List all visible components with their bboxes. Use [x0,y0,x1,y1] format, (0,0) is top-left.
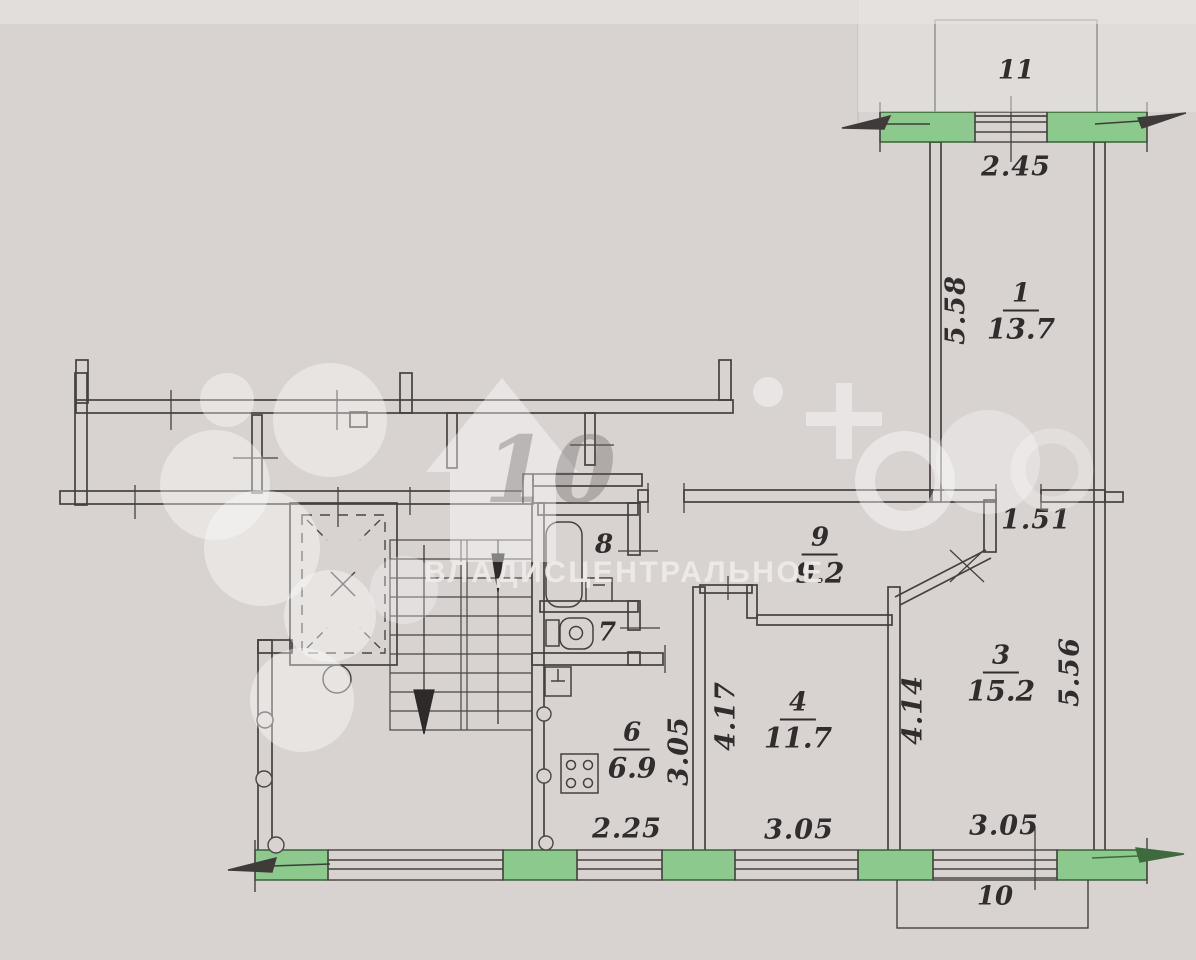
dim-room3-window: 3.05 [969,811,1039,842]
balcony-11-label: 11 [989,56,1043,87]
kitchen-sink [545,667,571,696]
dim-room1-depth: 5.58 [941,275,972,345]
dim-kitchen-depth: 3.05 [664,716,695,786]
dim-room4-depth: 4.17 [711,681,742,751]
room-3-label: 3 15.2 [967,641,1035,708]
room-6-label: 6 6.9 [608,718,657,785]
toilet [546,618,593,649]
room-number: 10 [968,882,1022,913]
floor-plan-scan: 11 2.45 1 13.7 5.58 1.51 9 9.2 8 7 6 6.9… [0,0,1196,960]
balcony-10-label: 10 [968,882,1022,913]
room-number: 7 [589,618,625,649]
room-number: 9 [802,523,838,556]
room-7-label: 7 [589,618,625,649]
room-number: 11 [989,56,1043,87]
room-number: 6 [614,718,650,751]
stove [561,754,598,793]
dim-kitchen-window: 2.25 [592,814,662,845]
dim-room4-window: 3.05 [764,815,834,846]
angled-wall-room3 [895,550,991,605]
dim-balcony11-window: 2.45 [981,152,1051,183]
watermark-agency-text: ВЛАДИСЦЕНТРАЛЬНОЕ [424,556,825,590]
room-1-label: 1 13.7 [987,279,1055,346]
dim-room3-right-depth: 5.56 [1055,637,1086,707]
section-arrows [228,113,1186,872]
garbage-chute [323,665,351,693]
dim-room3-left-depth: 4.14 [898,675,929,745]
room-number: 3 [983,641,1019,674]
room-area: 6.9 [608,752,657,785]
dim-corridor: 1.51 [1001,505,1071,536]
room-number: 1 [1003,279,1039,312]
riser-pipes [256,707,553,853]
watermark-house-number: 10 [484,416,620,524]
room-number: 4 [780,688,816,721]
elevator-cab [302,515,385,653]
room-area: 15.2 [967,675,1035,708]
room-area: 13.7 [987,313,1055,346]
room-4-label: 4 11.7 [764,688,832,755]
room-area: 11.7 [764,722,832,755]
